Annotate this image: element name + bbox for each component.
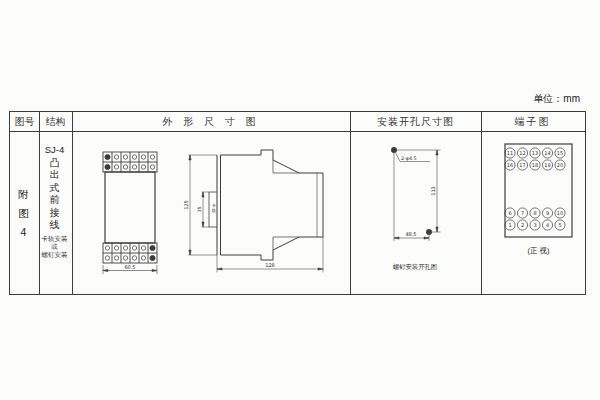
header-structure: 结构 bbox=[39, 112, 72, 131]
header-outline: 外 形 尺 寸 图 bbox=[72, 112, 350, 131]
datasheet-page: 单位：mm 图号 结构 外 形 尺 寸 图 安装开孔尺寸图 端子图 附 图 4 … bbox=[0, 0, 600, 400]
terminal-number: 14 bbox=[544, 150, 550, 156]
terminal-circles bbox=[505, 148, 565, 230]
terminal-number: 12 bbox=[519, 150, 525, 156]
terminal-diagram: 11 12 13 14 15 16 17 18 19 20 6 7 8 9 10… bbox=[492, 141, 592, 266]
unit-label: 单位：mm bbox=[533, 92, 580, 106]
terminal-numbers: 11 12 13 14 15 16 17 18 19 20 6 7 8 9 10… bbox=[507, 150, 563, 228]
hole-label: 2-φ4.5 bbox=[401, 156, 417, 161]
terminal-caption: (正 视) bbox=[527, 246, 550, 255]
header-terminal: 端子图 bbox=[481, 112, 584, 131]
horizontal-dim-text: 48.5 bbox=[405, 231, 416, 237]
terminal-number: 5 bbox=[558, 222, 561, 228]
terminal-number: 13 bbox=[532, 150, 538, 156]
terminal-number: 3 bbox=[533, 222, 536, 228]
terminal-number: 7 bbox=[521, 210, 524, 216]
structure-type-char: 线 bbox=[50, 219, 60, 230]
column-divider bbox=[350, 112, 351, 294]
figure-number-cell: 附 图 4 bbox=[9, 131, 38, 295]
structure-cell: SJ-4 凸 出 式 前 接 线 卡轨安装 或 螺钉安装 bbox=[38, 131, 71, 295]
vertical-dim-text: 113 bbox=[430, 186, 436, 196]
terminal-number: 17 bbox=[519, 162, 525, 168]
terminal-number: 18 bbox=[532, 162, 538, 168]
rail-label-char: 轨 bbox=[212, 208, 217, 213]
structure-type-char: 式 bbox=[50, 182, 60, 193]
mount-note-line: 卡轨安装 bbox=[42, 235, 68, 243]
mount-note-line: 或 bbox=[51, 243, 58, 251]
figure-number-char: 4 bbox=[21, 226, 27, 238]
structure-type-char: 接 bbox=[50, 207, 60, 218]
model-label: SJ-4 bbox=[45, 144, 65, 155]
terminal-number: 15 bbox=[557, 150, 563, 156]
header-fig-no: 图号 bbox=[10, 112, 39, 131]
terminal-number: 2 bbox=[521, 222, 524, 228]
column-divider bbox=[481, 112, 482, 294]
front-view-drawing: 60.5 bbox=[98, 147, 163, 282]
mount-note-line: 螺钉安装 bbox=[42, 251, 68, 259]
header-mounting: 安装开孔尺寸图 bbox=[350, 112, 481, 131]
rail-width-dimension bbox=[202, 192, 210, 227]
side-height-dim-text: 125 bbox=[183, 200, 189, 210]
figure-number-char: 附 bbox=[18, 188, 29, 202]
terminal-number: 10 bbox=[557, 210, 563, 216]
structure-type-char: 凸 bbox=[50, 157, 60, 168]
terminal-number: 4 bbox=[546, 222, 549, 228]
terminal-number: 16 bbox=[507, 162, 513, 168]
column-divider bbox=[72, 112, 73, 294]
rail-width-dim-text: 35 bbox=[197, 207, 202, 213]
terminal-number: 9 bbox=[546, 210, 549, 216]
horizontal-dimension bbox=[394, 153, 429, 241]
terminal-number: 19 bbox=[544, 162, 550, 168]
figure-number-char: 图 bbox=[18, 207, 29, 221]
terminal-number: 20 bbox=[557, 162, 563, 168]
front-view-outline bbox=[103, 152, 157, 263]
mounting-caption: 螺钉安装开孔图 bbox=[393, 263, 437, 271]
side-depth-dim-text: 128 bbox=[265, 262, 275, 268]
terminal-number: 1 bbox=[508, 222, 511, 228]
structure-type-char: 前 bbox=[50, 194, 60, 205]
mounting-hole-drawing: 2-φ4.5 113 48.5 螺钉安装开孔图 bbox=[358, 142, 478, 282]
terminal-number: 11 bbox=[507, 150, 513, 156]
header-divider bbox=[10, 131, 585, 132]
terminal-number: 6 bbox=[508, 210, 511, 216]
terminal-number: 8 bbox=[533, 210, 536, 216]
side-view-outline bbox=[209, 150, 323, 260]
front-width-dim-text: 60.5 bbox=[124, 264, 135, 270]
side-view-drawing: 125 35 卡 轨 128 bbox=[183, 147, 333, 287]
structure-type-char: 出 bbox=[50, 169, 60, 180]
